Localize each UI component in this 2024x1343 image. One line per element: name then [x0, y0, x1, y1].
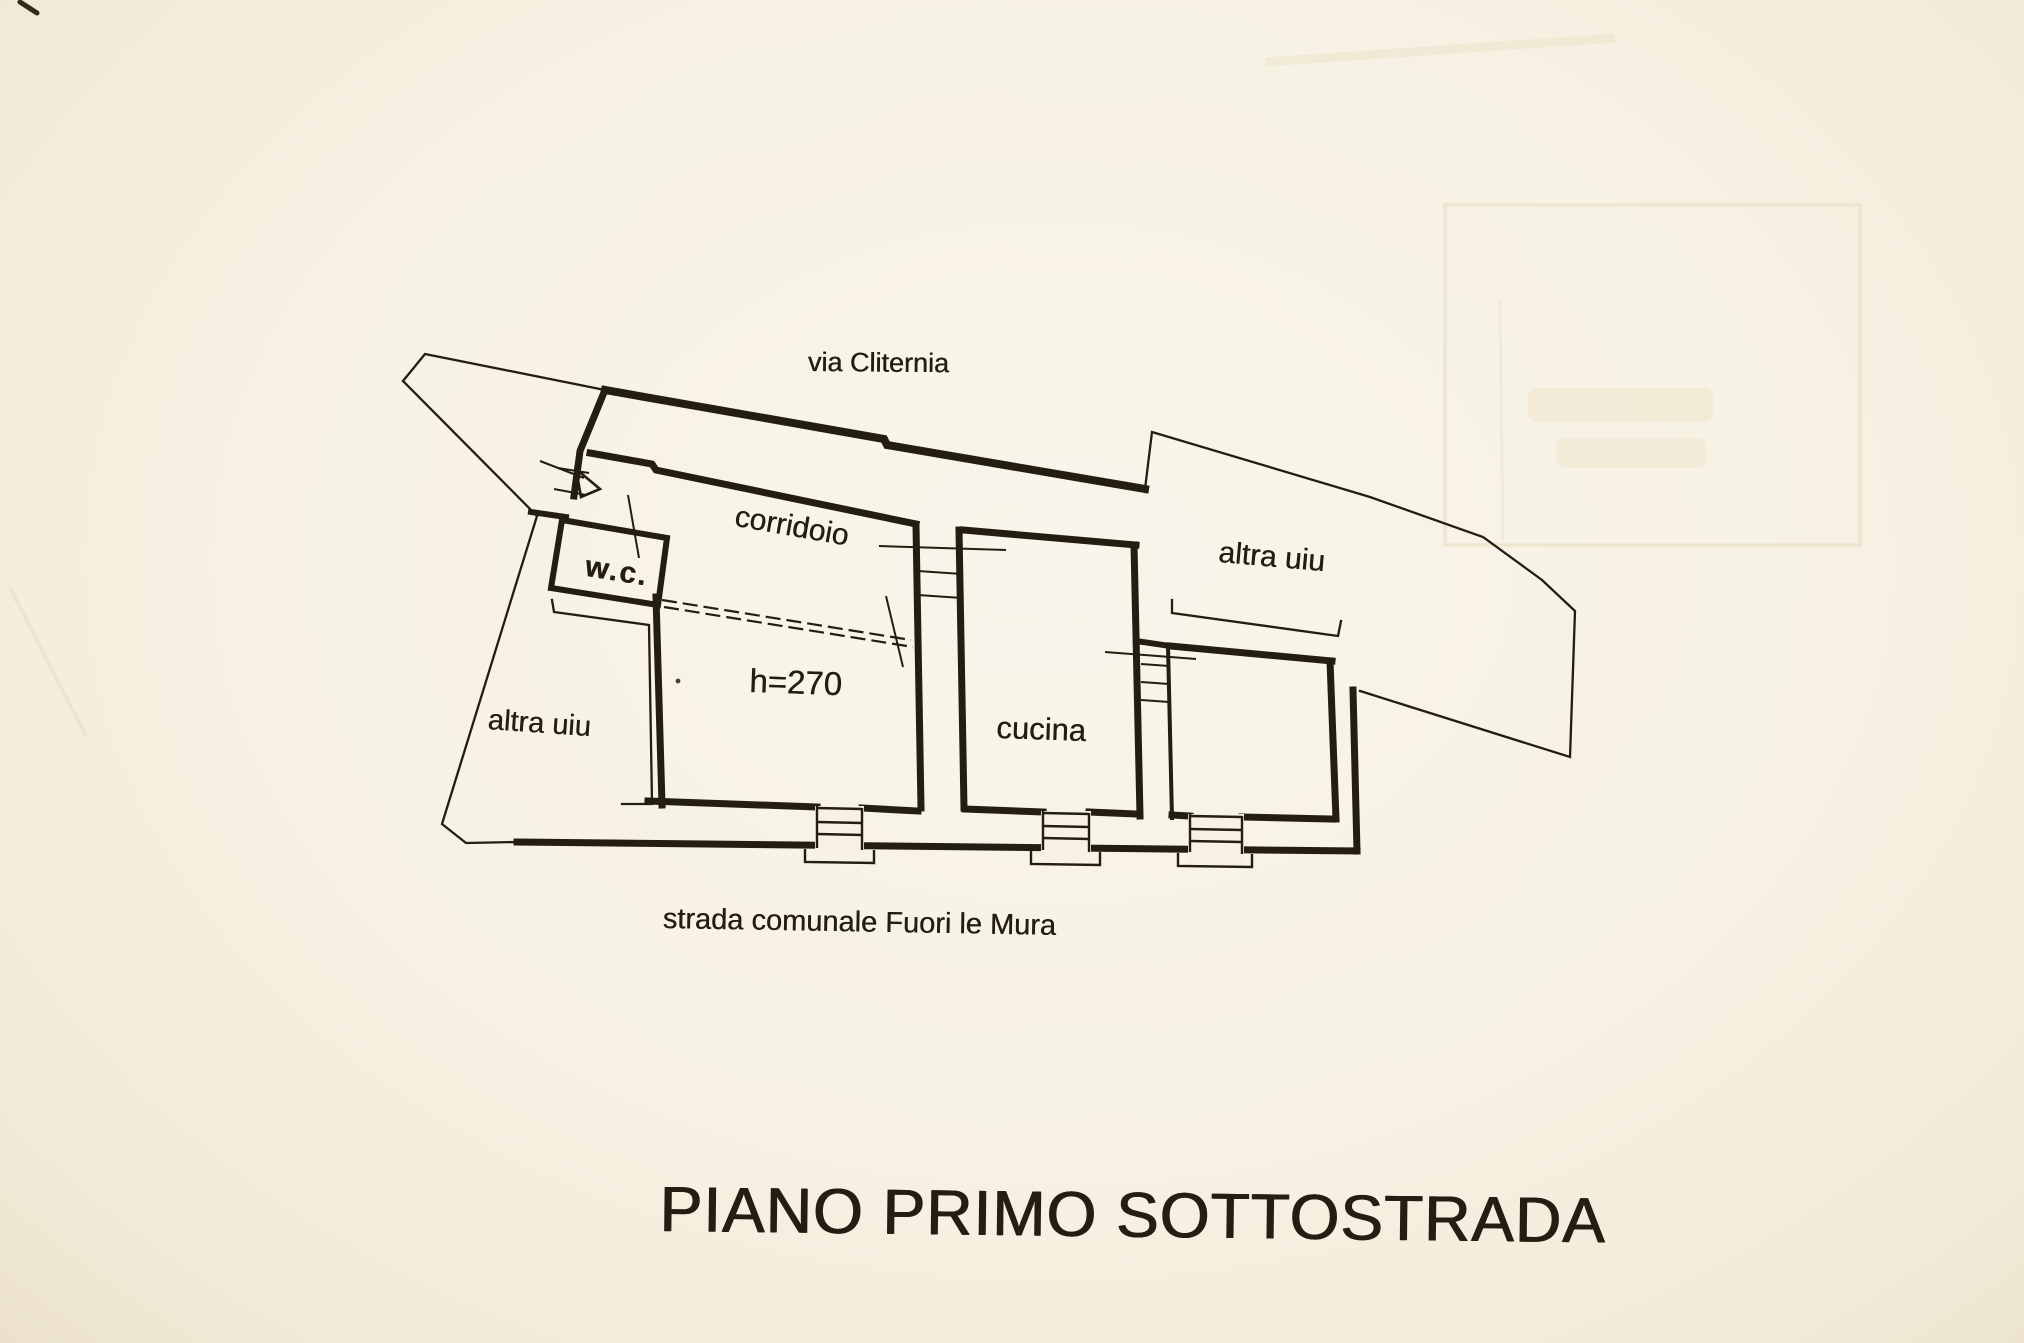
site-boundary: [403, 354, 1575, 843]
kitchen-top-wall: [963, 530, 1136, 545]
stairwell1-left-wall: [916, 526, 921, 808]
room-label-height-note: h=270: [749, 662, 843, 703]
internal-stair-steps: [918, 571, 1169, 702]
stair-2: [1031, 811, 1100, 865]
stairwell1-right-wall: [959, 530, 964, 808]
page-title: PIANO PRIMO SOTTOSTRADA: [659, 1172, 1606, 1258]
corner-pen-mark: [20, 2, 37, 13]
floor-plan-drawing: [0, 0, 2024, 1343]
room-label-kitchen: cucina: [996, 710, 1087, 749]
street-label-top: via Cliternia: [808, 347, 949, 379]
stair-3: [1178, 814, 1252, 867]
outer-east-wall: [1353, 690, 1357, 851]
street-label-bottom: strada comunale Fuori le Mura: [662, 903, 1056, 943]
adjacent-unit-boundaries: [552, 600, 1341, 804]
scanned-floor-plan-page: via Cliternia corridoio w.c. altra uiu h…: [0, 0, 2024, 1343]
left-unit-outline: [552, 600, 652, 802]
stairwell2-threshold: [1105, 652, 1196, 659]
ink-speck: [676, 679, 681, 684]
room-left-wall: [656, 597, 662, 805]
dashed-partition: [662, 600, 913, 647]
right-room-right-wall: [1330, 661, 1336, 819]
kitchen-right-wall: [1134, 545, 1140, 816]
stair-1: [805, 806, 874, 863]
stairwell2-right-wall: [1168, 646, 1172, 818]
stairwell2-top-stub: [1136, 641, 1170, 646]
right-unit-bracket: [1172, 600, 1341, 636]
partition-end-tick: [886, 596, 903, 667]
bleed-through-artifacts: [10, 38, 1860, 736]
wc-door-tick: [628, 495, 639, 558]
stairwell1-threshold: [879, 546, 1006, 550]
